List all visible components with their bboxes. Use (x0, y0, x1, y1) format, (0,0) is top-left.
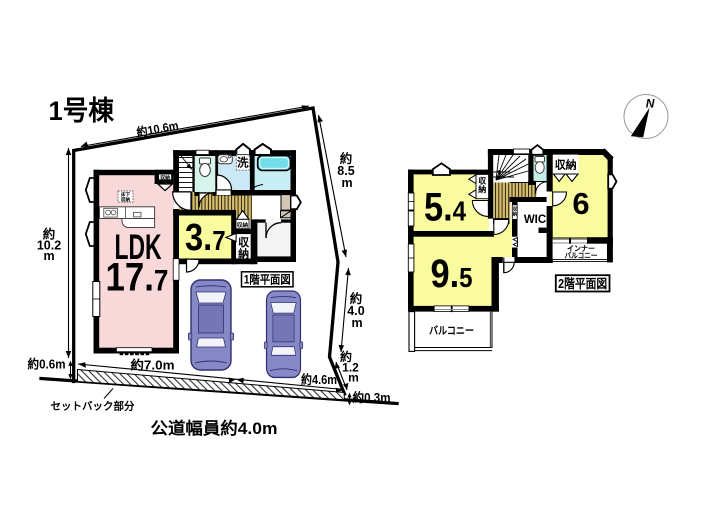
svg-text:2階平面図: 2階平面図 (558, 276, 607, 291)
svg-text:1号棟: 1号棟 (49, 96, 115, 126)
svg-text:6: 6 (572, 186, 589, 221)
svg-text:収: 収 (238, 236, 250, 249)
svg-text:約4.6m: 約4.6m (301, 372, 337, 387)
svg-text:N: N (646, 97, 655, 111)
svg-text:納: 納 (478, 184, 486, 194)
svg-text:納: 納 (513, 211, 518, 218)
svg-text:バルコニー: バルコニー (429, 325, 474, 337)
svg-text:約0.3m: 約0.3m (353, 390, 391, 405)
svg-text:洗: 洗 (237, 156, 249, 170)
svg-text:WIC: WIC (524, 214, 546, 226)
svg-text:収納: 収納 (160, 174, 170, 181)
svg-text:m: m (341, 176, 352, 190)
svg-text:公道幅員約4.0m: 公道幅員約4.0m (151, 418, 278, 438)
svg-text:収: 収 (478, 176, 487, 186)
svg-text:m: m (43, 249, 54, 263)
svg-text:収納: 収納 (237, 221, 249, 229)
svg-text:1階平面図: 1階平面図 (244, 272, 291, 286)
svg-text:収納: 収納 (555, 158, 577, 172)
svg-text:約7.0m: 約7.0m (131, 358, 175, 373)
svg-text:収納: 収納 (121, 196, 131, 203)
svg-text:セットバック部分: セットバック部分 (51, 400, 135, 413)
svg-text:約0.6m: 約0.6m (28, 357, 66, 372)
svg-text:納: 納 (238, 247, 249, 261)
svg-text:m: m (351, 316, 362, 330)
svg-text:m: m (348, 371, 359, 385)
svg-text:バルコニー: バルコニー (565, 251, 598, 260)
